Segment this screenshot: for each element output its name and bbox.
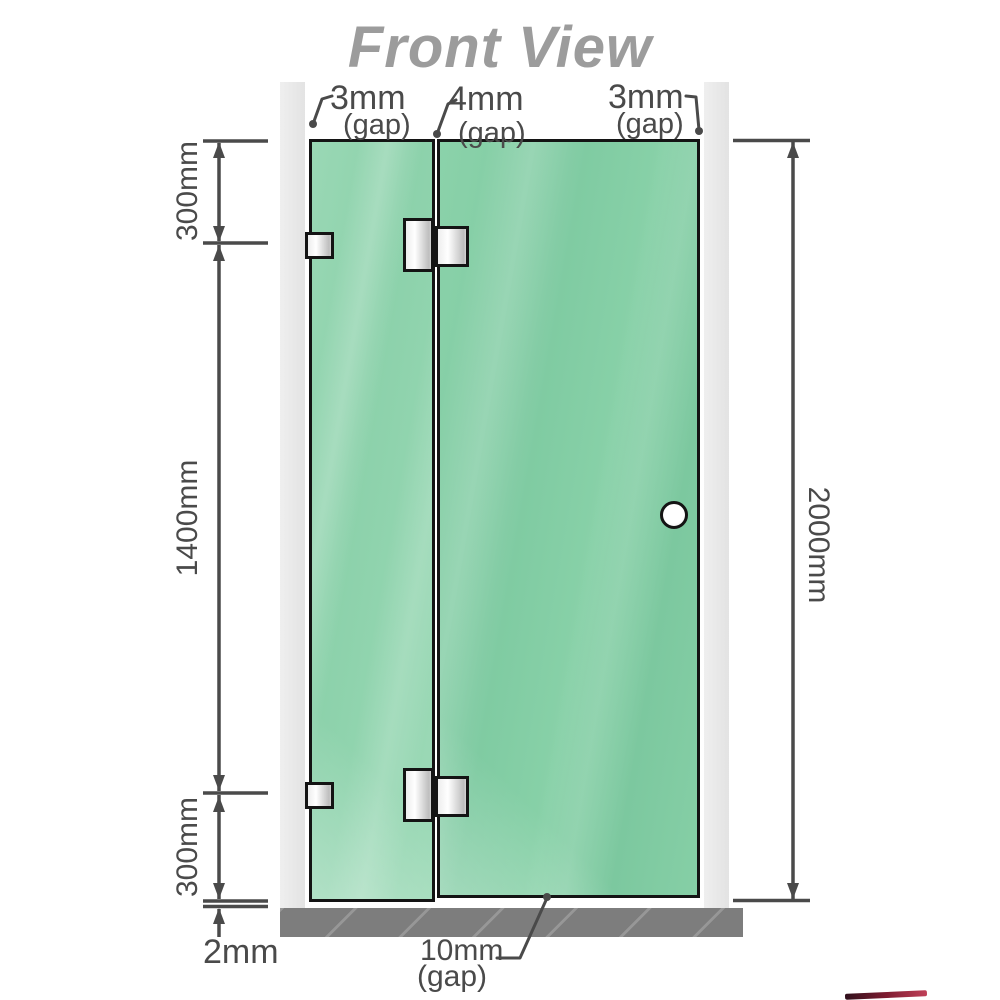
label-gap-bottom-suffix: (gap) [417, 960, 487, 993]
left-wall [280, 82, 305, 908]
glass-hinge-bottom-right-plate [435, 776, 469, 817]
front-view-diagram: Front View [0, 0, 1000, 1000]
label-gap-top-right-suffix: (gap) [616, 108, 684, 140]
dim-left-bottom-300mm: 300mm [171, 797, 204, 897]
door-knob-icon [660, 501, 688, 529]
wall-bracket-top [305, 232, 334, 259]
right-wall [704, 82, 729, 908]
label-gap-top-middle-value: 4mm [448, 80, 524, 118]
floor-base [280, 908, 743, 937]
glass-hinge-bottom-left-plate [403, 768, 434, 822]
label-gap-top-right-value: 3mm [608, 78, 684, 116]
glass-hinge-top-right-plate [435, 226, 469, 267]
dim-total-height-2000mm: 2000mm [802, 487, 835, 604]
dim-left-top-300mm: 300mm [171, 141, 204, 241]
diagram-title: Front View [0, 14, 1000, 81]
label-gap-top-left-value: 3mm [330, 79, 406, 117]
watermark-fragment [845, 990, 927, 1000]
label-gap-bottom-value: 10mm [420, 934, 503, 967]
label-gap-top-left-suffix: (gap) [343, 109, 411, 141]
dim-left-middle-1400mm: 1400mm [171, 460, 204, 577]
glass-hinge-top-left-plate [403, 218, 434, 272]
wall-bracket-bottom [305, 782, 334, 809]
dim-floor-clearance-2mm: 2mm [203, 933, 279, 971]
